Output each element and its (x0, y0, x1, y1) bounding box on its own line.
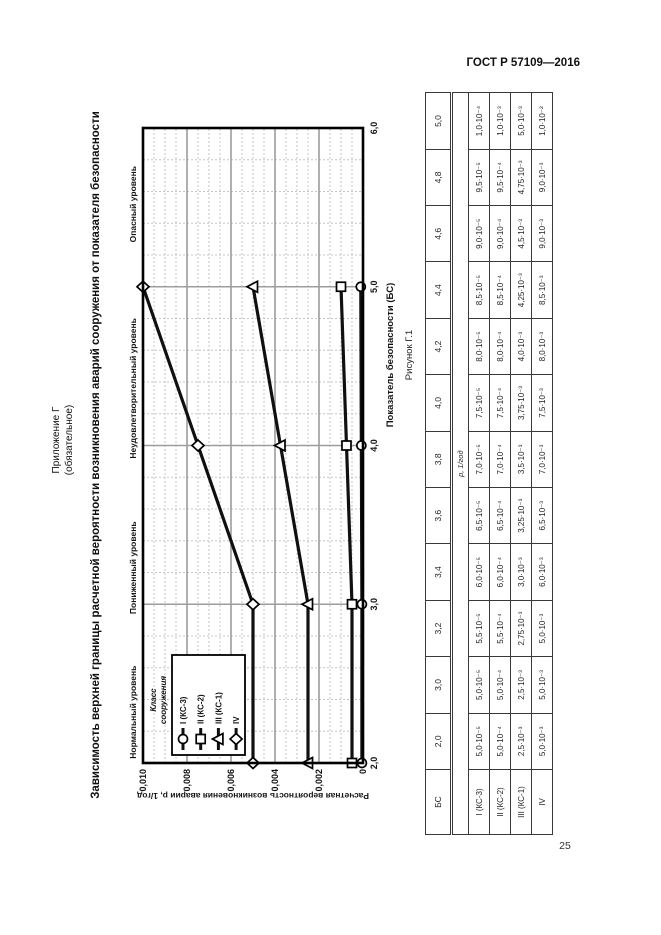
document-page: ГОСТ Р 57109—2016 25 Приложение Г (обяза… (0, 0, 661, 935)
table-cell: 7,5·10⁻⁴ (490, 375, 511, 431)
table-cell: 9,5·10⁻⁴ (490, 149, 511, 205)
table-cell: 1,0·10⁻³ (490, 93, 511, 149)
table-cell: 6,5·10⁻⁴ (490, 488, 511, 544)
legend-label: III (КС-1) (214, 692, 223, 724)
x-tick-label: 3,0 (369, 598, 379, 611)
data-table: БС2,03,03,23,43,63,84,04,24,44,64,85,0р,… (425, 92, 553, 835)
table-cell: 9,0·10⁻⁵ (469, 206, 490, 262)
table-cell: 3,25·10⁻³ (511, 488, 532, 544)
table-col-header: 5,0 (426, 93, 452, 149)
table-cell: 3,0·10⁻³ (511, 544, 532, 600)
zone-label: Нормальный уровень (128, 666, 138, 759)
table-corner-header: БС (426, 770, 452, 835)
table-cell: 5,5·10⁻⁵ (469, 600, 490, 656)
table-row-label: III (КС-1) (511, 770, 532, 835)
y-axis-label: Расчетная вероятность возникновения авар… (136, 791, 369, 801)
legend-label: I (КС-3) (179, 696, 188, 724)
table-cell: 9,5·10⁻⁵ (469, 149, 490, 205)
table-cell: 6,5·10⁻⁵ (469, 488, 490, 544)
table-cell: 8,0·10⁻³ (532, 318, 553, 374)
x-tick-label: 2,0 (369, 757, 379, 770)
y-tick-label: 0,010 (138, 769, 148, 792)
square-marker (342, 441, 351, 450)
table-cell: 6,0·10⁻³ (532, 544, 553, 600)
square-marker (337, 282, 346, 291)
table-subheader: р, 1/год (452, 93, 469, 835)
table-row: IV5,0·10⁻³5,0·10⁻³5,0·10⁻³6,0·10⁻³6,5·10… (532, 93, 553, 835)
table-row-label: II (КС-2) (490, 770, 511, 835)
table-cell: 6,0·10⁻⁴ (490, 544, 511, 600)
square-marker (196, 735, 205, 744)
table-cell: 7,5·10⁻⁵ (469, 375, 490, 431)
table-cell: 8,0·10⁻⁴ (490, 318, 511, 374)
table-cell: 5,0·10⁻³ (532, 600, 553, 656)
table-cell: 4,75·10⁻³ (511, 149, 532, 205)
table-cell: 5,0·10⁻³ (532, 657, 553, 713)
rotated-content: Приложение Г (обязательное) Зависимость … (45, 90, 548, 840)
table-cell: 4,5·10⁻³ (511, 206, 532, 262)
table-col-header: 4,2 (426, 318, 452, 374)
table-subheader-row: р, 1/год (452, 93, 469, 835)
table-cell: 5,0·10⁻³ (532, 713, 553, 769)
circle-marker (357, 441, 366, 450)
table-cell: 3,75·10⁻³ (511, 375, 532, 431)
table-col-header: 3,4 (426, 544, 452, 600)
x-axis-label: Показатель безопасности (БС) (385, 283, 396, 428)
y-tick-label: 0 (358, 769, 368, 774)
table-cell: 9,0·10⁻³ (532, 149, 553, 205)
table-col-header: 2,0 (426, 713, 452, 769)
probability-chart: Нормальный уровеньПониженный уровеньНеуд… (45, 90, 420, 840)
table-col-header: 3,6 (426, 488, 452, 544)
legend-label: II (КС-2) (197, 694, 206, 724)
figure-caption: Рисунок Г.1 (404, 330, 415, 380)
page-number: 25 (540, 840, 590, 852)
table-cell: 4,25·10⁻³ (511, 262, 532, 318)
table-cell: 5,0·10⁻⁵ (469, 657, 490, 713)
x-tick-label: 4,0 (369, 439, 379, 452)
table-cell: 7,0·10⁻³ (532, 431, 553, 487)
table-row-label: I (КС-3) (469, 770, 490, 835)
zone-label: Пониженный уровень (128, 521, 138, 614)
legend-title: сооружения (159, 676, 168, 725)
table-cell: 2,75·10⁻³ (511, 600, 532, 656)
table-header-row: БС2,03,03,23,43,63,84,04,24,44,64,85,0 (426, 93, 452, 835)
table-cell: 6,0·10⁻⁵ (469, 544, 490, 600)
table-cell: 8,5·10⁻⁴ (490, 262, 511, 318)
document-header: ГОСТ Р 57109—2016 (400, 57, 580, 69)
table-row: III (КС-1)2,5·10⁻³2,5·10⁻³2,75·10⁻³3,0·1… (511, 93, 532, 835)
table-cell: 7,0·10⁻⁴ (490, 431, 511, 487)
table-col-header: 3,0 (426, 657, 452, 713)
legend-label: IV (232, 716, 241, 724)
y-tick-label: 0,002 (314, 769, 324, 792)
table-row: II (КС-2)5,0·10⁻⁴5,0·10⁻⁴5,5·10⁻⁴6,0·10⁻… (490, 93, 511, 835)
table-cell: 5,0·10⁻⁴ (490, 657, 511, 713)
table-row: I (КС-3)5,0·10⁻⁵5,0·10⁻⁵5,5·10⁻⁵6,0·10⁻⁵… (469, 93, 490, 835)
table-cell: 3,5·10⁻³ (511, 431, 532, 487)
table-cell: 9,0·10⁻⁴ (490, 206, 511, 262)
table-cell: 8,0·10⁻⁵ (469, 318, 490, 374)
table-row-label: IV (532, 770, 553, 835)
x-tick-label: 5,0 (369, 280, 379, 293)
table-cell: 5,0·10⁻⁴ (490, 713, 511, 769)
table-col-header: 4,0 (426, 375, 452, 431)
x-tick-label: 6,0 (369, 122, 379, 135)
table-col-header: 4,8 (426, 149, 452, 205)
table-cell: 2,5·10⁻³ (511, 657, 532, 713)
table-cell: 2,5·10⁻³ (511, 713, 532, 769)
square-marker (348, 600, 357, 609)
table-cell: 7,0·10⁻⁵ (469, 431, 490, 487)
zone-label: Опасный уровень (128, 166, 138, 242)
table-cell: 1,0·10⁻⁴ (469, 93, 490, 149)
table-cell: 9,0·10⁻³ (532, 206, 553, 262)
circle-marker (179, 735, 188, 744)
table-col-header: 4,6 (426, 206, 452, 262)
y-tick-label: 0,004 (270, 769, 280, 792)
zone-label: Неудовлетворительный уровень (128, 318, 138, 458)
table-cell: 1,0·10⁻² (532, 93, 553, 149)
table-cell: 4,0·10⁻³ (511, 318, 532, 374)
table-col-header: 3,2 (426, 600, 452, 656)
table-cell: 8,5·10⁻⁵ (469, 262, 490, 318)
table-cell: 7,5·10⁻³ (532, 375, 553, 431)
table-col-header: 4,4 (426, 262, 452, 318)
table-cell: 5,0·10⁻⁵ (469, 713, 490, 769)
table-col-header: 3,8 (426, 431, 452, 487)
legend-title: Класс (149, 688, 158, 712)
data-table-wrap: БС2,03,03,23,43,63,84,04,24,44,64,85,0р,… (425, 92, 553, 835)
table-cell: 8,5·10⁻³ (532, 262, 553, 318)
table-cell: 5,5·10⁻⁴ (490, 600, 511, 656)
table-cell: 5,0·10⁻³ (511, 93, 532, 149)
table-cell: 6,5·10⁻³ (532, 488, 553, 544)
y-tick-label: 0,006 (226, 769, 236, 792)
rotated-inner: Приложение Г (обязательное) Зависимость … (45, 90, 548, 840)
y-tick-label: 0,008 (182, 769, 192, 792)
